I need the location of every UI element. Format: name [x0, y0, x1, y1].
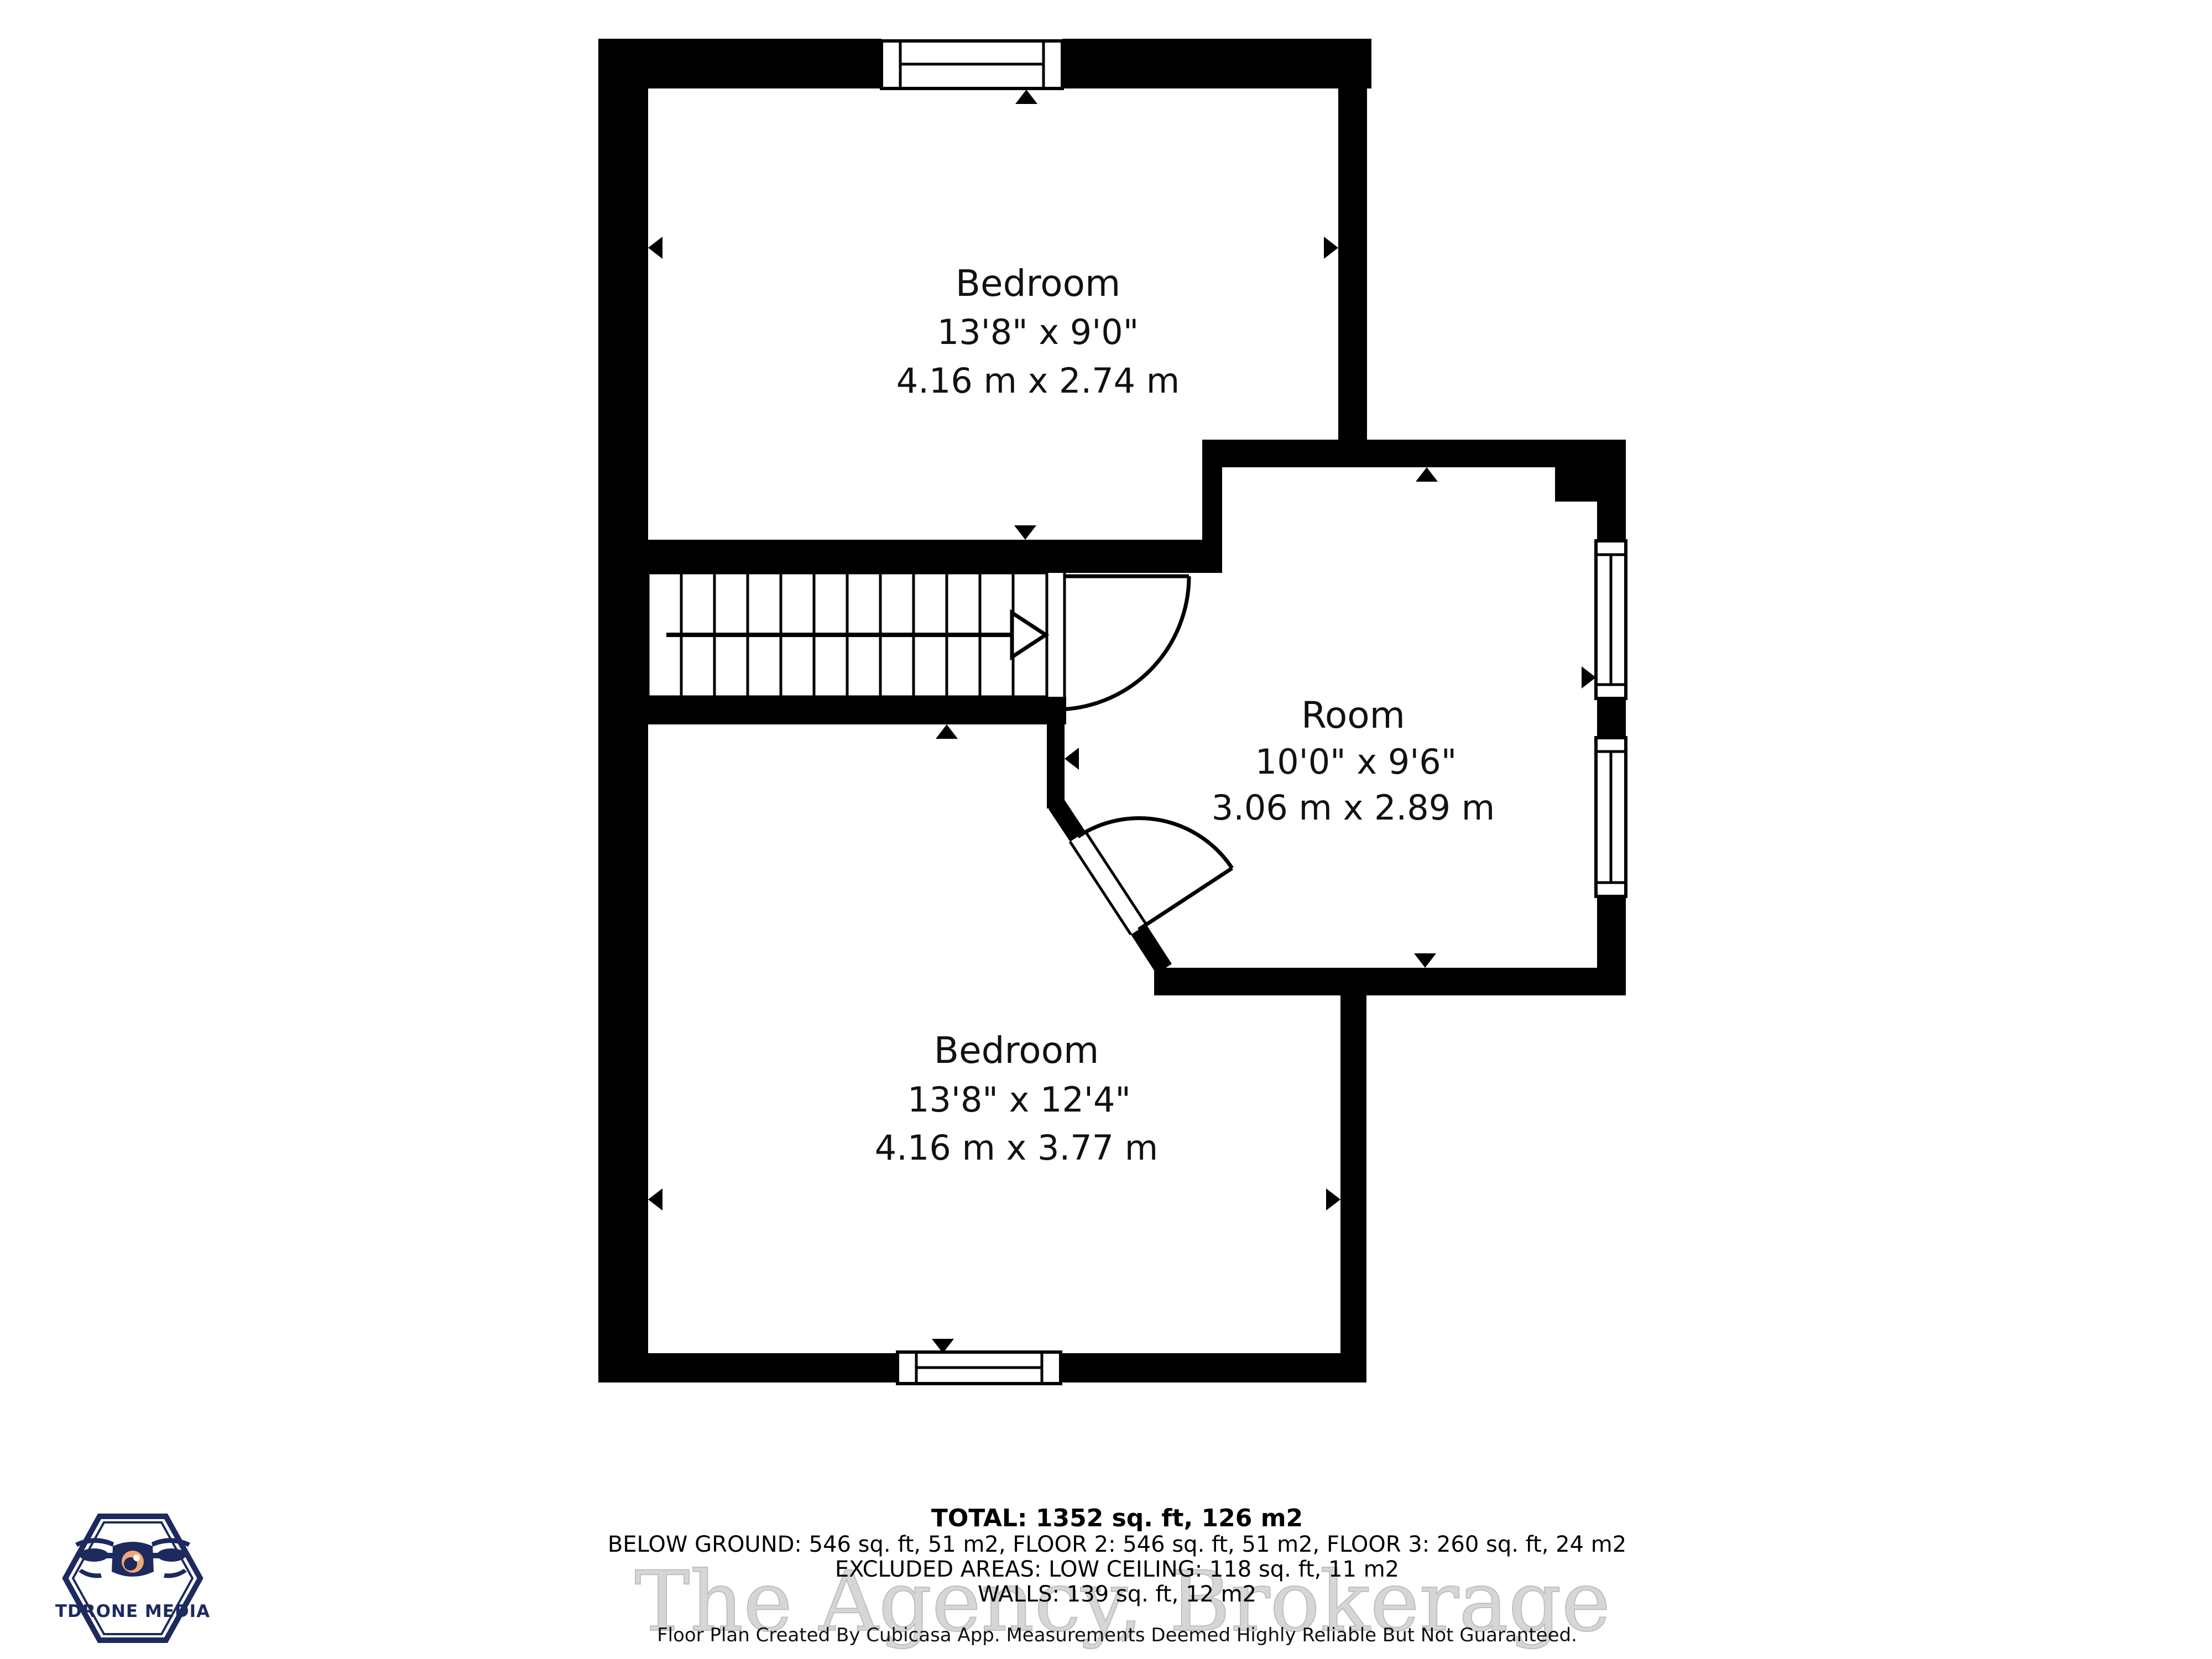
wall-bedroom2-right — [1340, 990, 1366, 1383]
wall-corridor-top — [648, 540, 1221, 573]
wall-room-right-middle — [1597, 698, 1626, 738]
stair-direction-arrow — [666, 613, 1046, 657]
bedroom1-metric: 4.16 m x 2.74 m — [896, 361, 1180, 401]
door-stairs — [1047, 573, 1189, 719]
summary-total: TOTAL: 1352 sq. ft, 126 m2 — [931, 1504, 1303, 1532]
marker-bedroom2-left-icon — [648, 1188, 662, 1211]
floor-plan-page: Bedroom 13'8" x 9'0" 4.16 m x 2.74 m Roo… — [0, 0, 2212, 1659]
label-bedroom-top: Bedroom 13'8" x 9'0" 4.16 m x 2.74 m — [896, 262, 1180, 401]
wall-room-right-upper — [1597, 502, 1626, 541]
summary-excluded: EXCLUDED AREAS: LOW CEILING: 118 sq. ft,… — [835, 1557, 1399, 1582]
wall-top-right-of-window — [1062, 39, 1371, 88]
wall-top-left-of-window — [598, 39, 881, 88]
window-room-upper — [1596, 541, 1626, 698]
staircase — [648, 573, 1047, 697]
summary-floors: BELOW GROUND: 546 sq. ft, 51 m2, FLOOR 2… — [608, 1532, 1626, 1557]
bedroom1-name: Bedroom — [956, 262, 1121, 305]
wall-bottom-right-of-window — [1061, 1353, 1366, 1383]
wall-diagonal-lower — [1131, 925, 1172, 974]
logo: TDRONE MEDIA — [55, 1516, 210, 1640]
wall-corridor-bottom — [598, 697, 1066, 724]
walls — [598, 39, 1626, 1383]
window-room-lower — [1596, 738, 1626, 896]
marker-down-icon — [1014, 525, 1036, 540]
room-metric: 3.06 m x 2.89 m — [1212, 787, 1495, 828]
marker-room-down-icon — [1414, 953, 1436, 968]
wall-bottom-left-of-window — [598, 1353, 898, 1383]
room-imperial: 10'0" x 9'6" — [1255, 742, 1457, 782]
wall-stairdoor-stub — [1047, 719, 1065, 808]
summary-disclaimer: Floor Plan Created By Cubicasa App. Meas… — [657, 1624, 1577, 1646]
wall-room-bottom — [1154, 968, 1626, 995]
bedroom2-metric: 4.16 m x 3.77 m — [875, 1128, 1158, 1168]
marker-right-icon — [1324, 237, 1338, 259]
wall-room-top — [1202, 440, 1626, 467]
wall-bedroom1-right — [1338, 39, 1367, 467]
marker-room-up-icon — [1416, 467, 1438, 482]
logo-hexagon-outer — [65, 1516, 200, 1640]
logo-text: TDRONE MEDIA — [55, 1601, 210, 1621]
room-name: Room — [1301, 694, 1405, 737]
floor-plan-canvas: Bedroom 13'8" x 9'0" 4.16 m x 2.74 m Roo… — [0, 0, 2212, 1659]
summary-walls: WALLS: 139 sq. ft, 12 m2 — [978, 1582, 1256, 1607]
marker-doorwall-left-icon — [1065, 748, 1079, 770]
marker-up-icon — [1015, 90, 1037, 104]
bedroom2-name: Bedroom — [934, 1029, 1099, 1072]
wall-room-right-lower — [1597, 896, 1626, 968]
door-room-chamfer — [1070, 818, 1232, 935]
marker-room-right-icon — [1582, 666, 1596, 688]
bedroom2-imperial: 13'8" x 12'4" — [907, 1079, 1131, 1120]
marker-corridor-up-icon — [936, 724, 958, 739]
wall-room-corner-notch — [1555, 467, 1626, 502]
window-top — [881, 41, 1062, 88]
label-room: Room 10'0" x 9'6" 3.06 m x 2.89 m — [1212, 694, 1495, 828]
marker-left-icon — [648, 237, 662, 259]
marker-bedroom2-right-icon — [1326, 1188, 1340, 1211]
bedroom1-imperial: 13'8" x 9'0" — [937, 312, 1139, 352]
window-bottom — [898, 1352, 1061, 1384]
label-bedroom-bottom: Bedroom 13'8" x 12'4" 4.16 m x 3.77 m — [875, 1029, 1158, 1168]
